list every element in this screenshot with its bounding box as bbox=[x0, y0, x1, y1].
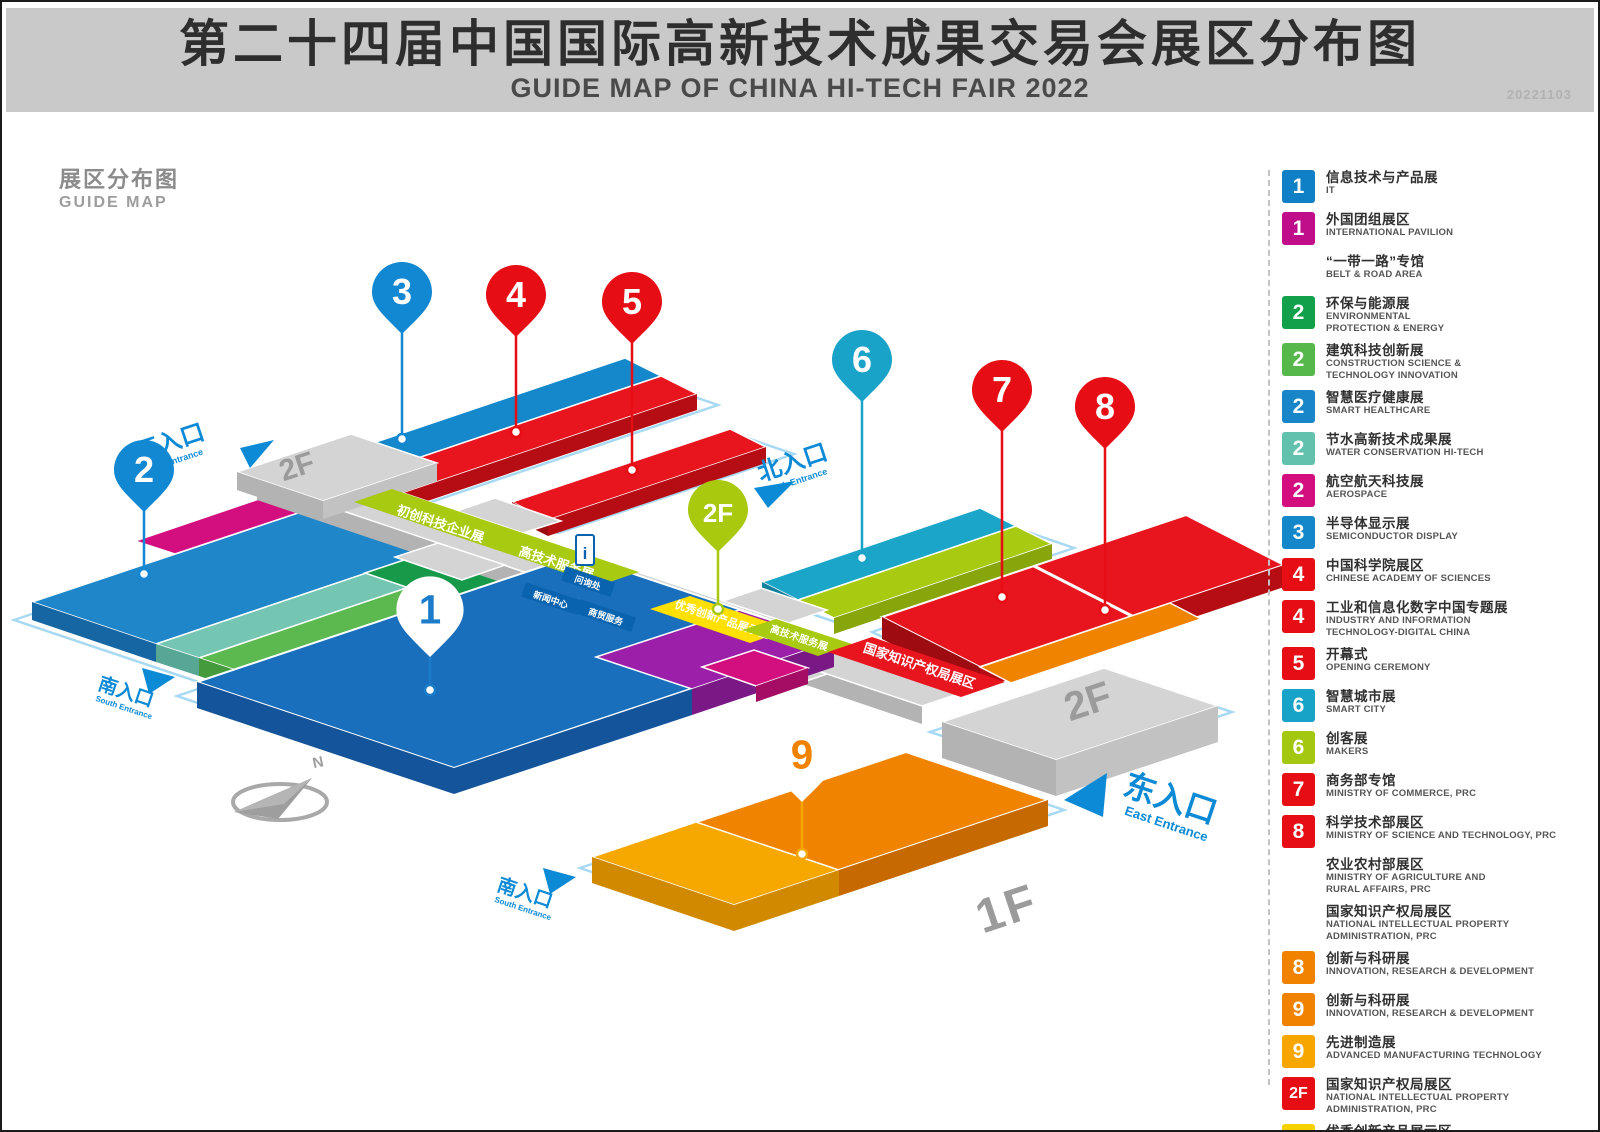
legend-label-cn: 农业农村部展区 bbox=[1326, 857, 1486, 872]
legend-badge: 1 bbox=[1282, 212, 1315, 245]
legend-label-cn: 中国科学院展区 bbox=[1326, 558, 1491, 573]
info-icon: i bbox=[583, 544, 588, 563]
svg-text:9: 9 bbox=[791, 731, 813, 777]
legend-item: 2航空航天科技展AEROSPACE bbox=[1282, 474, 1588, 507]
legend-label-cn: 工业和信息化数字中国专题展 bbox=[1326, 600, 1508, 615]
legend-label-cn: 建筑科技创新展 bbox=[1326, 343, 1461, 358]
legend-badge: 9 bbox=[1282, 1035, 1315, 1068]
legend-item: 8创新与科研展INNOVATION, RESEARCH & DEVELOPMEN… bbox=[1282, 951, 1588, 984]
legend-label-en: CHINESE ACADEMY OF SCIENCES bbox=[1326, 573, 1491, 585]
legend-item: 9先进制造展ADVANCED MANUFACTURING TECHNOLOGY bbox=[1282, 1035, 1588, 1068]
legend-badge: 6 bbox=[1282, 731, 1315, 764]
legend-badge: 9 bbox=[1282, 993, 1315, 1026]
legend-label-en: INDUSTRY AND INFORMATION TECHNOLOGY-DIGI… bbox=[1326, 615, 1508, 638]
legend-item: 1信息技术与产品展IT bbox=[1282, 170, 1588, 203]
legend-label-cn: 环保与能源展 bbox=[1326, 296, 1444, 311]
legend-label-cn: “一带一路”专馆 bbox=[1326, 254, 1425, 269]
svg-text:2: 2 bbox=[134, 449, 154, 490]
legend-label-cn: 智慧城市展 bbox=[1326, 689, 1396, 704]
legend-label-en: BELT & ROAD AREA bbox=[1326, 269, 1425, 281]
legend-label-cn: 节水高新技术成果展 bbox=[1326, 432, 1484, 447]
legend-item: 5开幕式OPENING CEREMONY bbox=[1282, 647, 1588, 680]
legend-label-en: AEROSPACE bbox=[1326, 489, 1424, 501]
svg-text:7: 7 bbox=[992, 369, 1012, 410]
legend-label-cn: 优秀创新产品展示区 bbox=[1326, 1124, 1552, 1132]
guide-map-page: 第二十四届中国国际高新技术成果交易会展区分布图 GUIDE MAP OF CHI… bbox=[0, 0, 1600, 1132]
legend-label-en: INNOVATION, RESEARCH & DEVELOPMENT bbox=[1326, 966, 1534, 978]
legend-item: 4工业和信息化数字中国专题展INDUSTRY AND INFORMATION T… bbox=[1282, 600, 1588, 638]
legend-label-en: WATER CONSERVATION HI-TECH bbox=[1326, 447, 1484, 459]
legend-badge: 2 bbox=[1282, 343, 1315, 376]
compass-icon: N bbox=[233, 753, 327, 820]
legend-item: 8科学技术部展区MINISTRY OF SCIENCE AND TECHNOLO… bbox=[1282, 815, 1588, 848]
legend-label-cn: 信息技术与产品展 bbox=[1326, 170, 1438, 185]
info-kiosk: i bbox=[576, 535, 594, 565]
svg-text:6: 6 bbox=[852, 339, 872, 380]
entrance-south-west: 南入口 South Entrance bbox=[94, 668, 175, 721]
legend-label-en: NATIONAL INTELLECTUAL PROPERTY ADMINISTR… bbox=[1326, 919, 1509, 942]
legend-item: 2环保与能源展ENVIRONMENTAL PROTECTION & ENERGY bbox=[1282, 296, 1588, 334]
legend-badge: 2F bbox=[1282, 1124, 1315, 1132]
legend-label-en: SMART HEALTHCARE bbox=[1326, 405, 1430, 417]
legend-badge-empty bbox=[1282, 254, 1315, 287]
compass-n: N bbox=[311, 753, 325, 772]
legend-label-en: MAKERS bbox=[1326, 746, 1368, 758]
legend-badge: 4 bbox=[1282, 558, 1315, 591]
legend-badge: 5 bbox=[1282, 647, 1315, 680]
svg-text:3: 3 bbox=[392, 271, 412, 312]
floor-label-1f: 1F bbox=[969, 874, 1045, 944]
map-pin-3: 3 bbox=[372, 262, 432, 444]
legend-item: 3半导体显示展SEMICONDUCTOR DISPLAY bbox=[1282, 516, 1588, 549]
legend-item: 2建筑科技创新展CONSTRUCTION SCIENCE & TECHNOLOG… bbox=[1282, 343, 1588, 381]
legend-label-cn: 创客展 bbox=[1326, 731, 1368, 746]
legend-label-cn: 商务部专馆 bbox=[1326, 773, 1476, 788]
legend-label-cn: 外国团组展区 bbox=[1326, 212, 1453, 227]
legend-badge: 7 bbox=[1282, 773, 1315, 806]
legend-label-en: MINISTRY OF SCIENCE AND TECHNOLOGY, PRC bbox=[1326, 830, 1556, 842]
legend-label-en: INNOVATION, RESEARCH & DEVELOPMENT bbox=[1326, 1008, 1534, 1020]
legend-item: 2F国家知识产权局展区NATIONAL INTELLECTUAL PROPERT… bbox=[1282, 1077, 1588, 1115]
legend-badge-empty bbox=[1282, 857, 1315, 890]
legend-badge: 3 bbox=[1282, 516, 1315, 549]
legend-label-en: SEMICONDUCTOR DISPLAY bbox=[1326, 531, 1458, 543]
legend-label-cn: 先进制造展 bbox=[1326, 1035, 1542, 1050]
legend-item: 6创客展MAKERS bbox=[1282, 731, 1588, 764]
legend-item: 7商务部专馆MINISTRY OF COMMERCE, PRC bbox=[1282, 773, 1588, 806]
legend-label-en: IT bbox=[1326, 185, 1438, 197]
svg-text:2F: 2F bbox=[703, 498, 733, 528]
entrance-south: 南入口 South Entrance bbox=[493, 868, 576, 922]
legend-label-cn: 创新与科研展 bbox=[1326, 993, 1534, 1008]
legend-item: 2F优秀创新产品展示区PREMIUM INNOVATIVE PRODUCTS S… bbox=[1282, 1124, 1588, 1132]
legend-item: 1外国团组展区INTERNATIONAL PAVILION bbox=[1282, 212, 1588, 245]
legend-item: 9创新与科研展INNOVATION, RESEARCH & DEVELOPMEN… bbox=[1282, 993, 1588, 1026]
legend-badge-empty bbox=[1282, 904, 1315, 937]
legend-label-cn: 开幕式 bbox=[1326, 647, 1431, 662]
north-entrance-arrow bbox=[754, 481, 795, 508]
legend-item: 2节水高新技术成果展WATER CONSERVATION HI-TECH bbox=[1282, 432, 1588, 465]
legend-label-en: MINISTRY OF COMMERCE, PRC bbox=[1326, 788, 1476, 800]
legend-panel: 1信息技术与产品展IT1外国团组展区INTERNATIONAL PAVILION… bbox=[1268, 170, 1588, 1085]
legend-label-en: CONSTRUCTION SCIENCE & TECHNOLOGY INNOVA… bbox=[1326, 358, 1461, 381]
legend-badge: 2 bbox=[1282, 296, 1315, 329]
legend-badge: 8 bbox=[1282, 951, 1315, 984]
legend-badge: 2 bbox=[1282, 432, 1315, 465]
legend-label-en: ENVIRONMENTAL PROTECTION & ENERGY bbox=[1326, 311, 1444, 334]
svg-text:8: 8 bbox=[1095, 386, 1115, 427]
legend-label-cn: 半导体显示展 bbox=[1326, 516, 1458, 531]
legend-badge: 1 bbox=[1282, 170, 1315, 203]
legend-badge: 2F bbox=[1282, 1077, 1315, 1110]
legend-badge: 8 bbox=[1282, 815, 1315, 848]
legend-item: 4中国科学院展区CHINESE ACADEMY OF SCIENCES bbox=[1282, 558, 1588, 591]
svg-text:5: 5 bbox=[622, 281, 642, 322]
legend-label-cn: 航空航天科技展 bbox=[1326, 474, 1424, 489]
legend-label-cn: 创新与科研展 bbox=[1326, 951, 1534, 966]
svg-text:1: 1 bbox=[419, 586, 441, 632]
legend-item: 6智慧城市展SMART CITY bbox=[1282, 689, 1588, 722]
legend-badge: 6 bbox=[1282, 689, 1315, 722]
legend-item: 2智慧医疗健康展SMART HEALTHCARE bbox=[1282, 390, 1588, 423]
legend-item: “一带一路”专馆BELT & ROAD AREA bbox=[1282, 254, 1588, 287]
legend-badge: 4 bbox=[1282, 600, 1315, 633]
svg-text:4: 4 bbox=[506, 274, 526, 315]
legend-item: 国家知识产权局展区NATIONAL INTELLECTUAL PROPERTY … bbox=[1282, 904, 1588, 942]
legend-label-cn: 智慧医疗健康展 bbox=[1326, 390, 1430, 405]
legend-label-en: SMART CITY bbox=[1326, 704, 1396, 716]
map-pin-6: 6 bbox=[832, 330, 892, 563]
legend-label-en: MINISTRY OF AGRICULTURE AND RURAL AFFAIR… bbox=[1326, 872, 1486, 895]
legend-item: 农业农村部展区MINISTRY OF AGRICULTURE AND RURAL… bbox=[1282, 857, 1588, 895]
legend-label-en: OPENING CEREMONY bbox=[1326, 662, 1431, 674]
legend-label-cn: 科学技术部展区 bbox=[1326, 815, 1556, 830]
legend-label-cn: 国家知识产权局展区 bbox=[1326, 904, 1509, 919]
legend-label-en: NATIONAL INTELLECTUAL PROPERTY ADMINISTR… bbox=[1326, 1092, 1509, 1115]
legend-label-cn: 国家知识产权局展区 bbox=[1326, 1077, 1509, 1092]
legend-badge: 2 bbox=[1282, 390, 1315, 423]
legend-badge: 2 bbox=[1282, 474, 1315, 507]
legend-label-en: ADVANCED MANUFACTURING TECHNOLOGY bbox=[1326, 1050, 1542, 1062]
legend-label-en: INTERNATIONAL PAVILION bbox=[1326, 227, 1453, 239]
